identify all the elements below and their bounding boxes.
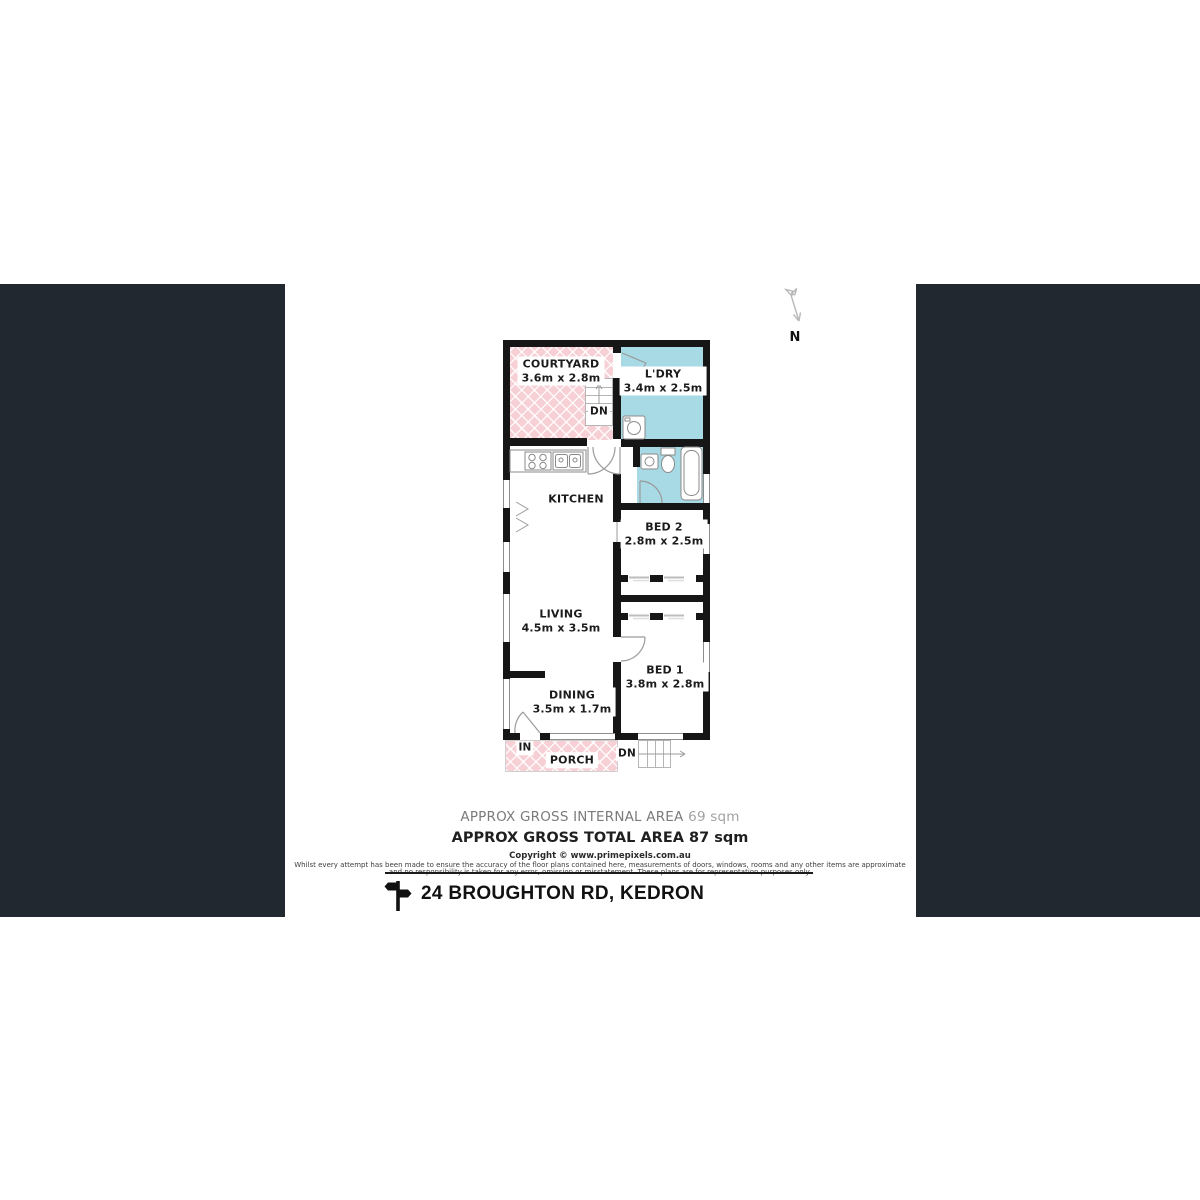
room-label-porch: PORCH (546, 752, 598, 768)
stair-tread (586, 387, 612, 388)
room-dims: 3.6m x 2.8m (522, 371, 601, 385)
north-label: N (780, 330, 810, 345)
room-label-bed2: BED 2 2.8m x 2.5m (621, 520, 708, 549)
window (503, 542, 510, 572)
kitchen-sink-icon (553, 452, 583, 470)
room-dims: 4.5m x 3.5m (522, 621, 601, 635)
stair-tread (586, 403, 612, 404)
bifold-doors (516, 502, 528, 532)
total-area-label: APPROX GROSS TOTAL AREA (452, 830, 684, 846)
wall-segment (503, 438, 587, 446)
wardrobe-wall-stub (621, 613, 628, 620)
internal-area-line: APPROX GROSS INTERNAL AREA69 sqm (0, 809, 1200, 825)
internal-area-label: APPROX GROSS INTERNAL AREA (460, 809, 683, 825)
wall-segment (633, 447, 640, 467)
wall-segment (683, 733, 710, 740)
room-name: BED 2 (625, 521, 704, 535)
door-arc-bed1 (621, 637, 645, 661)
room-label-bed1: BED 1 3.8m x 2.8m (622, 663, 709, 692)
window (503, 679, 510, 729)
room-label-kitchen: KITCHEN (544, 491, 608, 507)
stairs-bottom (638, 740, 671, 768)
room-label-laundry: L'DRY 3.4m x 2.5m (620, 367, 707, 396)
stair-tread (647, 741, 648, 767)
wall-segment (503, 572, 510, 594)
wall-segment (621, 439, 710, 447)
room-label-courtyard: COURTYARD 3.6m x 2.8m (518, 357, 605, 386)
kitchen-counter (510, 450, 586, 472)
wall-segment (613, 542, 621, 637)
copyright-line: Copyright © www.primepixels.com.au (0, 851, 1200, 861)
window (550, 733, 615, 740)
room-dims: 2.8m x 2.5m (625, 534, 704, 548)
room-name: L'DRY (624, 368, 703, 382)
wardrobe-wall-stub (650, 575, 663, 582)
door-arc-kitchen (588, 447, 615, 474)
door-arc-hall (593, 447, 620, 474)
divider-rule (385, 872, 813, 874)
internal-area-value: 69 sqm (688, 809, 739, 825)
room-label-living: LIVING 4.5m x 3.5m (518, 607, 605, 636)
room-dims: 3.5m x 1.7m (533, 702, 612, 716)
wall-segment (615, 733, 638, 740)
wall-segment (613, 474, 621, 522)
wall-segment (540, 733, 550, 740)
room-name: PORCH (550, 753, 594, 767)
wardrobe-wall-stub (650, 613, 663, 620)
wall-segment (613, 340, 621, 353)
room-label-dining: DINING 3.5m x 1.7m (529, 688, 616, 717)
room-name: DINING (533, 689, 612, 703)
wardrobe-wall-stub (696, 575, 703, 582)
marker-dn-bottom: DN (616, 747, 638, 761)
window (503, 480, 510, 508)
wall-segment (621, 503, 710, 510)
wall-segment (503, 340, 510, 480)
window (503, 594, 510, 642)
room-bathroom (637, 447, 703, 503)
property-address: 24 BROUGHTON RD, KEDRON (421, 883, 704, 905)
room-name: KITCHEN (548, 492, 604, 506)
total-area-value: 87 sqm (689, 830, 748, 846)
marker-entry-in: IN (516, 741, 533, 755)
wall-segment (703, 340, 710, 474)
wall-segment (503, 733, 520, 740)
room-name: COURTYARD (522, 358, 601, 372)
wardrobe-wall-stub (621, 575, 628, 582)
stair-tread (655, 741, 656, 767)
window (638, 733, 683, 740)
stair-tread (586, 395, 612, 396)
wall-segment (503, 340, 710, 347)
room-dims: 3.8m x 2.8m (626, 677, 705, 691)
room-name: LIVING (522, 608, 601, 622)
floorplan-page: COURTYARD 3.6m x 2.8m L'DRY 3.4m x 2.5m … (0, 0, 1200, 1200)
wall-segment (621, 595, 710, 602)
stair-tread (663, 741, 664, 767)
wardrobe-wall-stub (696, 613, 703, 620)
wall-segment (503, 508, 510, 542)
room-name: BED 1 (626, 664, 705, 678)
total-area-line: APPROX GROSS TOTAL AREA87 sqm (0, 830, 1200, 846)
stove-icon (525, 452, 551, 470)
wall-segment (503, 671, 545, 678)
window (703, 474, 710, 506)
room-dims: 3.4m x 2.5m (624, 381, 703, 395)
marker-dn-top: DN (588, 405, 610, 419)
